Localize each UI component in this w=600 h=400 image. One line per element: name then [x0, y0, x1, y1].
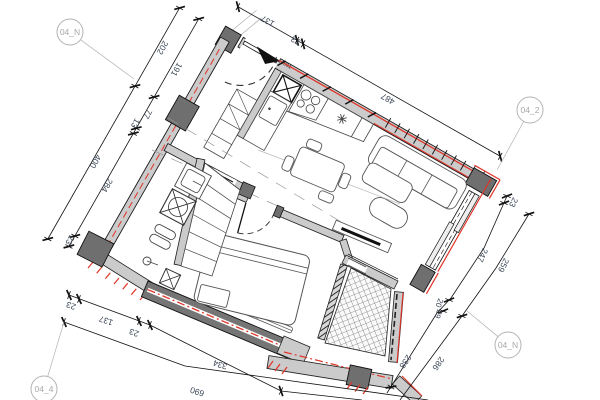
svg-text:04_N: 04_N: [60, 27, 80, 37]
svg-text:04_4: 04_4: [35, 384, 54, 394]
svg-text:04_2: 04_2: [521, 105, 540, 115]
svg-text:04_N: 04_N: [498, 340, 518, 350]
